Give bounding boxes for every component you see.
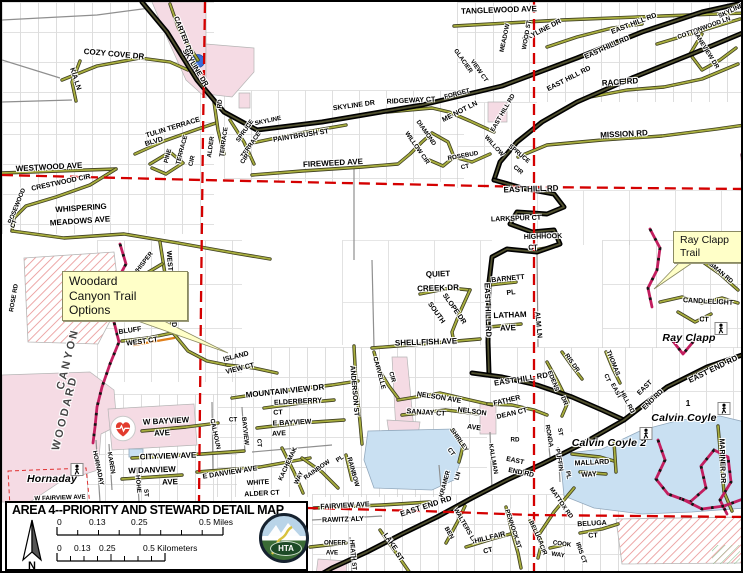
callout-text: Trail [680,247,736,260]
map-canvas[interactable]: TANGLEWOOD AVECARTER DRCOZY COVE DRKIA L… [2,2,741,571]
callout-text: Ray Clapp [680,234,736,247]
map-title: AREA 4--PRIORITY AND STEWARD DETAIL MAP [12,503,284,517]
map-viewport: TANGLEWOOD AVECARTER DRCOZY COVE DRKIA L… [0,0,743,573]
callout-woodard-canyon-trail-options: Woodard Canyon Trail Options [62,271,188,321]
scale-ruler [55,526,227,538]
callout-text: Woodard [69,274,181,289]
callout-ray-clapp-trail: Ray Clapp Trail [673,231,743,263]
scale-bar-miles: 0 0.13 0.25 0.5 Miles [55,517,231,543]
scale-ruler [55,552,169,564]
north-arrow-icon: N [15,518,49,570]
callout-text: Options [69,303,181,318]
callout-text: Canyon Trail [69,289,181,304]
hta-logo-text: HTA [270,541,302,556]
scale-bar-kilometers: 0 0.13 0.25 0.5 Kilometers [55,543,231,569]
hta-logo: HTA [259,513,309,563]
legend-panel: AREA 4--PRIORITY AND STEWARD DETAIL MAP … [5,501,308,571]
north-label: N [28,560,36,570]
